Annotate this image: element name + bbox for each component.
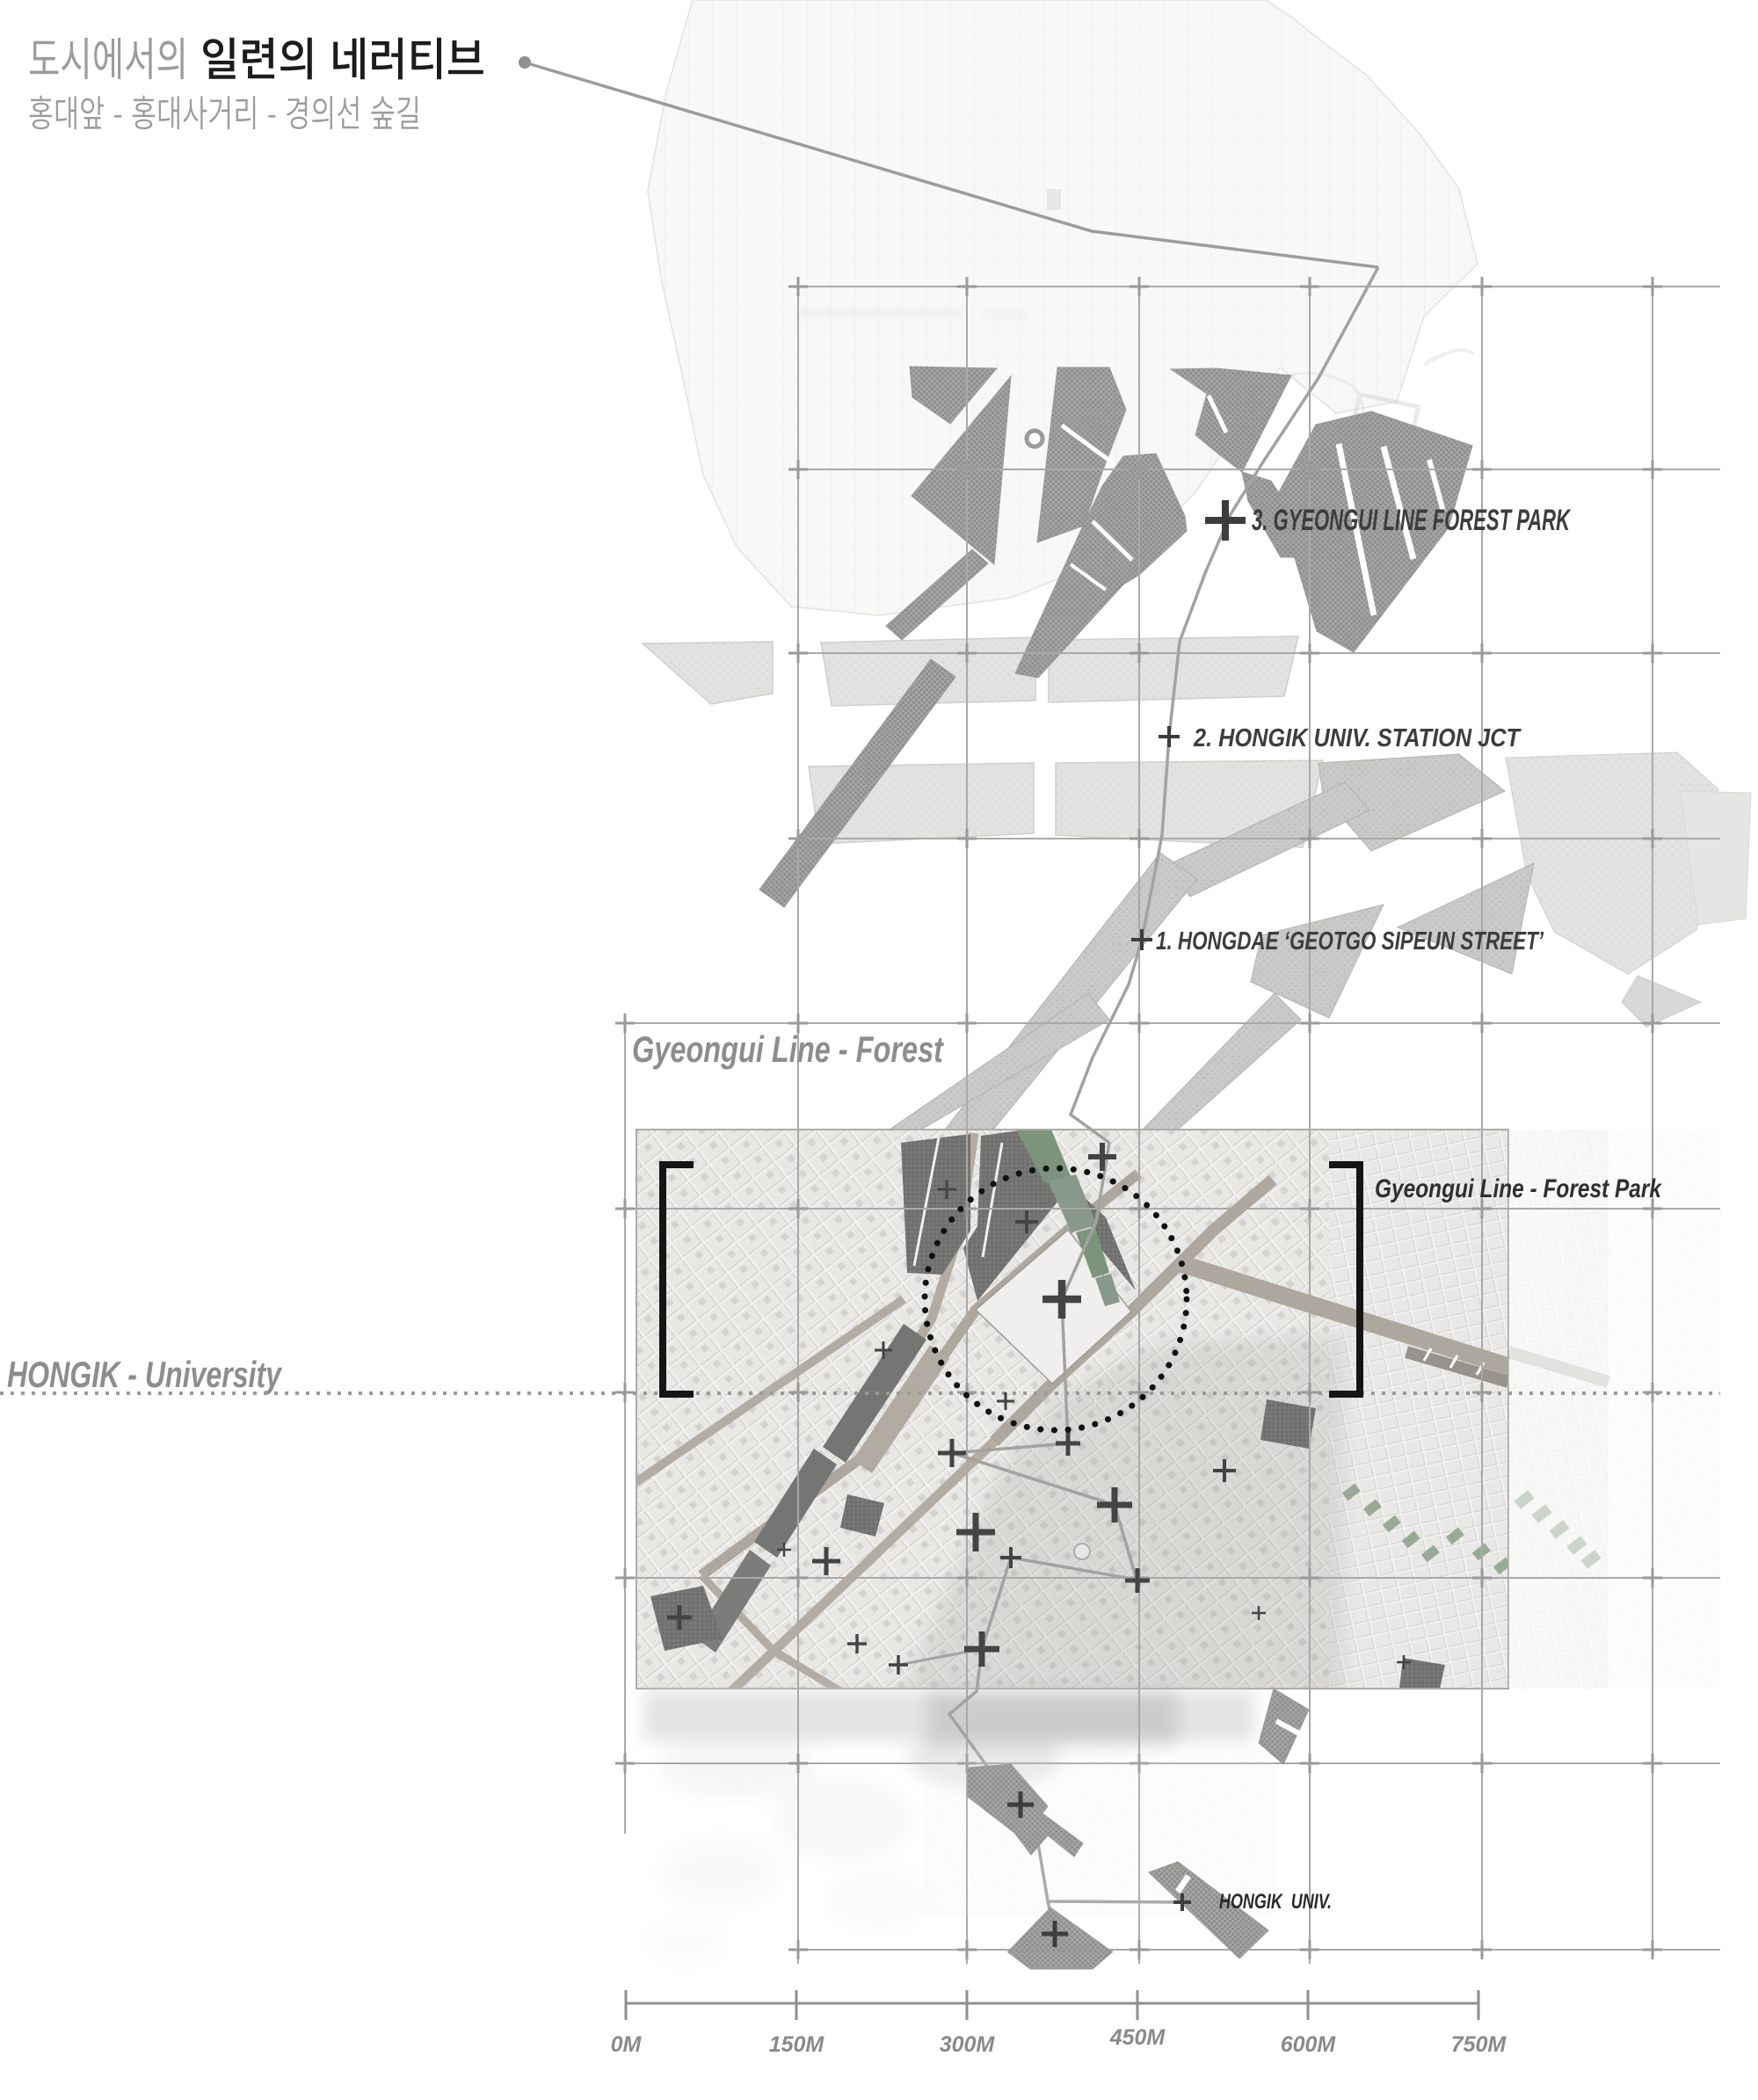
svg-text:300M: 300M xyxy=(940,2032,996,2057)
svg-text:3. GYEONGUI LINE FOREST PARK: 3. GYEONGUI LINE FOREST PARK xyxy=(1252,504,1572,537)
svg-text:600M: 600M xyxy=(1281,2032,1337,2057)
svg-text:Gyeongui Line - Forest: Gyeongui Line - Forest xyxy=(632,1028,945,1070)
svg-text:1. HONGDAE ‘GEOTGO SIPEUN STRE: 1. HONGDAE ‘GEOTGO SIPEUN STREET’ xyxy=(1156,927,1544,956)
svg-text:450M: 450M xyxy=(1109,2025,1166,2050)
svg-text:0M: 0M xyxy=(611,2032,643,2057)
svg-text:150M: 150M xyxy=(769,2032,825,2057)
svg-text:2. HONGIK UNIV. STATION JCT: 2. HONGIK UNIV. STATION JCT xyxy=(1193,724,1522,752)
svg-text:HONGIK UNIV.: HONGIK UNIV. xyxy=(1219,1890,1332,1914)
svg-text:HONGIK - University: HONGIK - University xyxy=(7,1354,283,1395)
svg-text:750M: 750M xyxy=(1451,2032,1507,2057)
svg-text:Gyeongui Line - Forest Park: Gyeongui Line - Forest Park xyxy=(1375,1174,1662,1203)
